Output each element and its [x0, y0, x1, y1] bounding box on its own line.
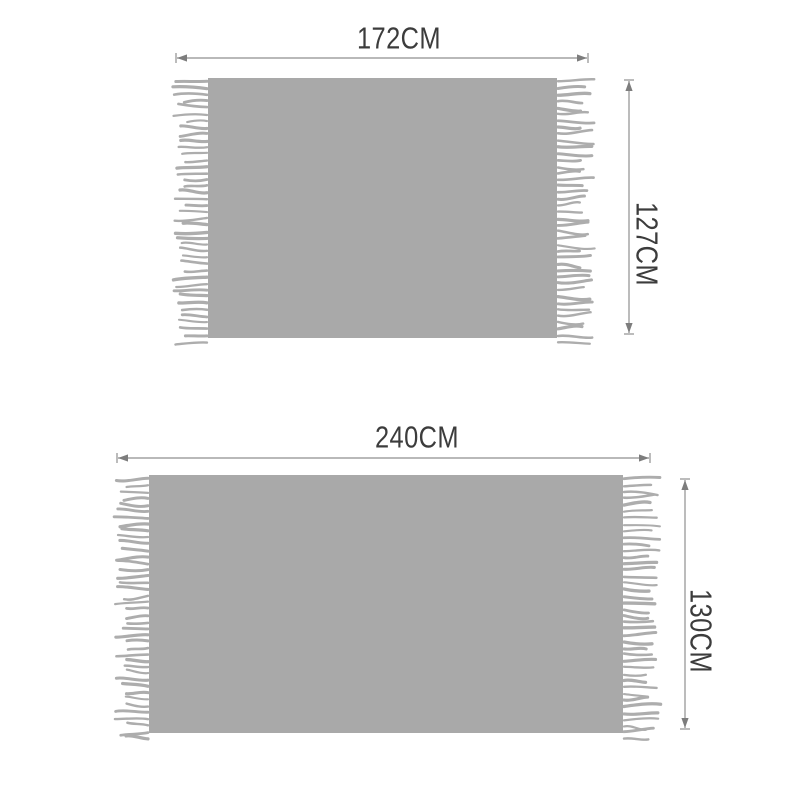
blanket-top-fringe-left: [173, 81, 207, 344]
product-dimension-diagram: 172CM 127CM 240CM 130CM: [0, 0, 800, 800]
diagram-graphics: [0, 0, 800, 800]
width-label-bottom: 240CM: [375, 422, 459, 453]
blanket-bottom-fringe-left: [114, 478, 148, 739]
blanket-bottom-body: [149, 475, 623, 733]
blanket-bottom-fringe-right: [624, 477, 661, 740]
blanket-top-fringe-right: [558, 79, 595, 344]
width-dimension-arrow-bottom: [117, 453, 650, 463]
blanket-top-body: [208, 78, 557, 338]
height-label-top: 127CM: [632, 202, 663, 286]
width-label-top: 172CM: [357, 23, 441, 54]
height-label-bottom: 130CM: [686, 589, 717, 673]
